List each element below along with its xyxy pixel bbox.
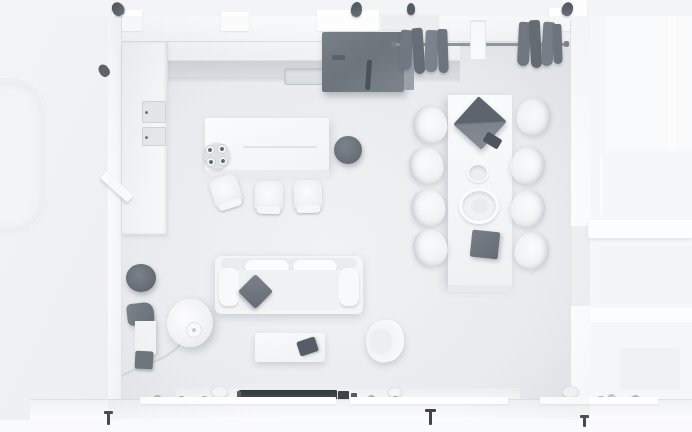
low-shelf xyxy=(135,321,156,354)
hanging-garment xyxy=(399,30,413,71)
sofa-armrest xyxy=(219,268,239,306)
tablet xyxy=(296,336,319,356)
floor-lamp-finial xyxy=(192,328,196,332)
sofa-armrest xyxy=(339,268,359,306)
adjacent-room-left xyxy=(0,0,108,432)
hanging-garment xyxy=(437,29,449,73)
plate-inner xyxy=(471,198,489,214)
bowl xyxy=(467,163,489,183)
built-in-oven xyxy=(142,101,166,123)
gray-box xyxy=(470,230,501,260)
floorplan-render xyxy=(0,0,692,432)
adjacent-room-block xyxy=(606,0,692,148)
cooktop-hob xyxy=(204,143,230,169)
exterior-bottom xyxy=(0,420,692,432)
coffee-table xyxy=(255,333,325,362)
dining-table-edge xyxy=(448,285,512,292)
window-sill xyxy=(540,397,658,404)
door-handle xyxy=(425,409,436,412)
window-frame xyxy=(221,12,249,31)
armchair-seat xyxy=(368,327,393,356)
planter-pot xyxy=(126,264,156,292)
refrigerator-vent xyxy=(332,55,345,60)
island-seam xyxy=(243,146,317,148)
storage-box xyxy=(135,351,154,370)
bathtub xyxy=(0,78,48,236)
burner xyxy=(205,145,215,155)
adjacent-room-block xyxy=(600,155,692,215)
sofa xyxy=(215,256,363,314)
adjacent-room-block xyxy=(600,246,692,304)
window-frame xyxy=(317,10,379,31)
adjacent-wall xyxy=(668,0,676,150)
window-sill xyxy=(350,397,508,404)
window-frame xyxy=(381,14,439,30)
wall-right-upper xyxy=(570,16,590,226)
burner xyxy=(206,157,216,167)
wall-stub-upper xyxy=(588,220,692,238)
window-handle xyxy=(407,3,415,15)
window-sill xyxy=(140,397,336,404)
burner xyxy=(217,144,227,154)
dark-stool xyxy=(334,136,362,164)
bar-chair xyxy=(293,180,322,212)
serving-plate xyxy=(459,188,499,224)
door-handle xyxy=(104,411,113,414)
hanging-garment xyxy=(552,24,562,64)
adjacent-room-furniture xyxy=(620,348,680,390)
adjacent-rooms-right xyxy=(588,0,692,432)
bar-chair xyxy=(254,181,283,213)
built-in-microwave xyxy=(142,127,166,146)
door-handle xyxy=(580,415,589,418)
door-handle xyxy=(429,410,432,425)
oven-handle xyxy=(145,111,148,114)
oven-handle xyxy=(145,136,148,139)
wall-stub-lower xyxy=(588,308,692,322)
rail-bracket xyxy=(564,41,569,47)
folded-clothes-stack xyxy=(470,20,486,60)
door-threshold xyxy=(572,226,590,306)
rail-bracket xyxy=(391,41,396,47)
burner xyxy=(218,156,228,166)
